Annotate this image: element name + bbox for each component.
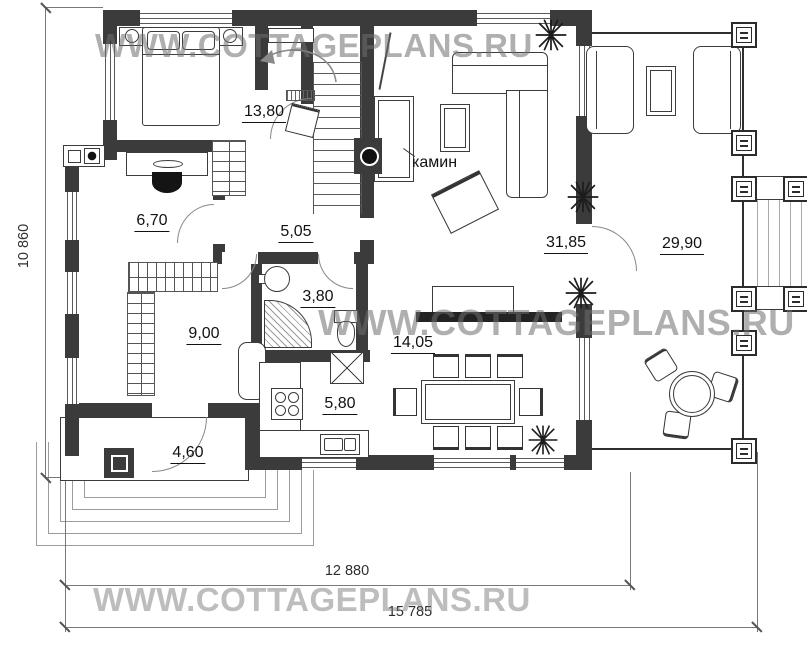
corner-sofa [452, 52, 548, 94]
room-label-study: 6,70 [134, 212, 169, 232]
plant [527, 424, 559, 456]
room-label-dressing: 9,00 [186, 325, 221, 345]
dimension-line-outer [65, 627, 757, 628]
terrace-chair [643, 347, 679, 383]
plant [566, 180, 600, 214]
coffee-table [440, 104, 470, 152]
dimension-width-total: 15 785 [388, 604, 432, 620]
sink-basin [344, 438, 356, 451]
bathroom-sink [264, 266, 290, 292]
sofa-cushion-line [453, 65, 547, 66]
terrace-column [731, 130, 757, 156]
extension-line [45, 7, 103, 8]
boiler [330, 352, 364, 384]
column-core [736, 135, 752, 151]
dimension-line-left [45, 8, 46, 478]
terrace-column [731, 438, 757, 464]
window [103, 44, 117, 120]
utility-box [68, 150, 81, 163]
terrace-sofa [693, 46, 741, 134]
window [65, 272, 79, 314]
wall-bedroom-south [103, 140, 213, 152]
terrace-table-inner [650, 70, 672, 112]
porch-column-core [111, 455, 128, 472]
terrace-column [783, 176, 807, 202]
coffee-table-inner [444, 108, 466, 148]
terrace-column [731, 286, 757, 312]
toilet-bowl [337, 321, 355, 347]
watermark-middle: WWW.COTTAGEPLANS.RU [318, 302, 795, 344]
burner [288, 392, 299, 403]
chimney-flue [360, 147, 379, 166]
hanger-rail [127, 292, 155, 396]
wall-living-west [360, 26, 374, 218]
terrace-step-line [801, 198, 802, 286]
bar-counter [416, 312, 562, 322]
door-arc [318, 254, 353, 289]
terrace-edge-south [592, 448, 743, 450]
terrace-column [731, 330, 757, 356]
sofa-back-line [730, 51, 731, 129]
plant [534, 18, 568, 52]
terrace-column [731, 22, 757, 48]
column-core [788, 291, 804, 307]
column-core [736, 291, 752, 307]
room-label-living: 31,85 [544, 234, 588, 254]
chimney [354, 138, 382, 174]
dining-chair [465, 354, 491, 378]
terrace-column [731, 176, 757, 202]
round-table [669, 371, 715, 417]
burner [275, 392, 286, 403]
stove [271, 388, 303, 420]
bed [142, 27, 220, 126]
dining-chair [393, 388, 417, 416]
door-arc [592, 226, 637, 271]
window [65, 192, 79, 240]
vanity-mirror [153, 160, 183, 168]
room-label-bedroom: 13,80 [242, 103, 286, 123]
dimension-width-inner: 12 880 [325, 563, 369, 579]
plant [564, 276, 598, 310]
armchair [431, 170, 499, 234]
column-core [736, 443, 752, 459]
round-table-inner [673, 375, 711, 413]
burner [288, 405, 299, 416]
window [140, 10, 232, 26]
desk-chair [152, 172, 182, 193]
pillow [182, 31, 215, 50]
dining-chair [519, 388, 543, 416]
utility-dial [84, 148, 100, 164]
room-label-hall: 5,05 [278, 223, 313, 243]
terrace-column [783, 286, 807, 312]
wall-bathroom-east [356, 252, 368, 362]
room-label-bathroom: 3,80 [300, 288, 335, 308]
terrace-sofa [586, 46, 634, 134]
terrace-step-line [790, 198, 791, 286]
dining-chair [465, 426, 491, 450]
blanket-line [143, 54, 219, 55]
column-core [736, 181, 752, 197]
kitchen-sink [320, 434, 360, 455]
dining-table [421, 380, 515, 424]
room-label-dining: 14,05 [391, 334, 435, 354]
sink-basin [324, 438, 343, 451]
fireplace-inner [378, 100, 410, 178]
corner-sofa [506, 90, 548, 198]
extension-line [757, 452, 758, 632]
burner [275, 405, 286, 416]
watermark-bottom: WWW.COTTAGEPLANS.RU [93, 581, 531, 619]
dimension-line-inner [65, 585, 630, 586]
column-core [736, 335, 752, 351]
window [434, 455, 510, 470]
dining-chair [497, 354, 523, 378]
room-label-kitchen: 5,80 [322, 395, 357, 415]
terrace-step-line [757, 198, 758, 286]
fireplace-label: камин [412, 154, 457, 172]
terrace-step-line [768, 198, 769, 286]
column-core [736, 27, 752, 43]
lamp [223, 29, 237, 43]
extension-line [65, 456, 66, 632]
room-label-terrace: 29,90 [660, 235, 704, 255]
column-core [788, 181, 804, 197]
sofa-cushion-line [519, 91, 520, 197]
dining-chair [433, 354, 459, 378]
dining-table-inner [425, 384, 511, 420]
door-arc [177, 204, 214, 243]
sofa-back-line [596, 51, 597, 129]
hanger-rail [128, 262, 218, 292]
extension-line [630, 472, 631, 590]
pillow [147, 31, 180, 50]
door-opening [152, 403, 208, 417]
utility-unit [63, 145, 105, 167]
window [576, 338, 592, 420]
room-label-porch: 4,60 [170, 444, 205, 464]
stairs-direction-arrow [256, 38, 342, 86]
dining-chair [433, 426, 459, 450]
terrace-edge-east [742, 32, 744, 450]
sideboard [432, 286, 514, 314]
wardrobe-hangers [212, 140, 246, 196]
dimension-height: 10 860 [16, 224, 32, 268]
floor-plan: 13,80 6,70 5,05 9,00 3,80 5,80 14,05 31,… [0, 0, 807, 645]
terrace-edge-north [592, 32, 743, 34]
doormat [286, 90, 315, 101]
terrace-step-line [779, 198, 780, 286]
window [516, 455, 564, 470]
window [65, 358, 79, 404]
wall-mirror [378, 32, 391, 89]
lamp [125, 29, 139, 43]
porch-column [104, 448, 134, 478]
door-opening [213, 200, 225, 244]
terrace-table [646, 66, 676, 116]
dining-chair [497, 426, 523, 450]
